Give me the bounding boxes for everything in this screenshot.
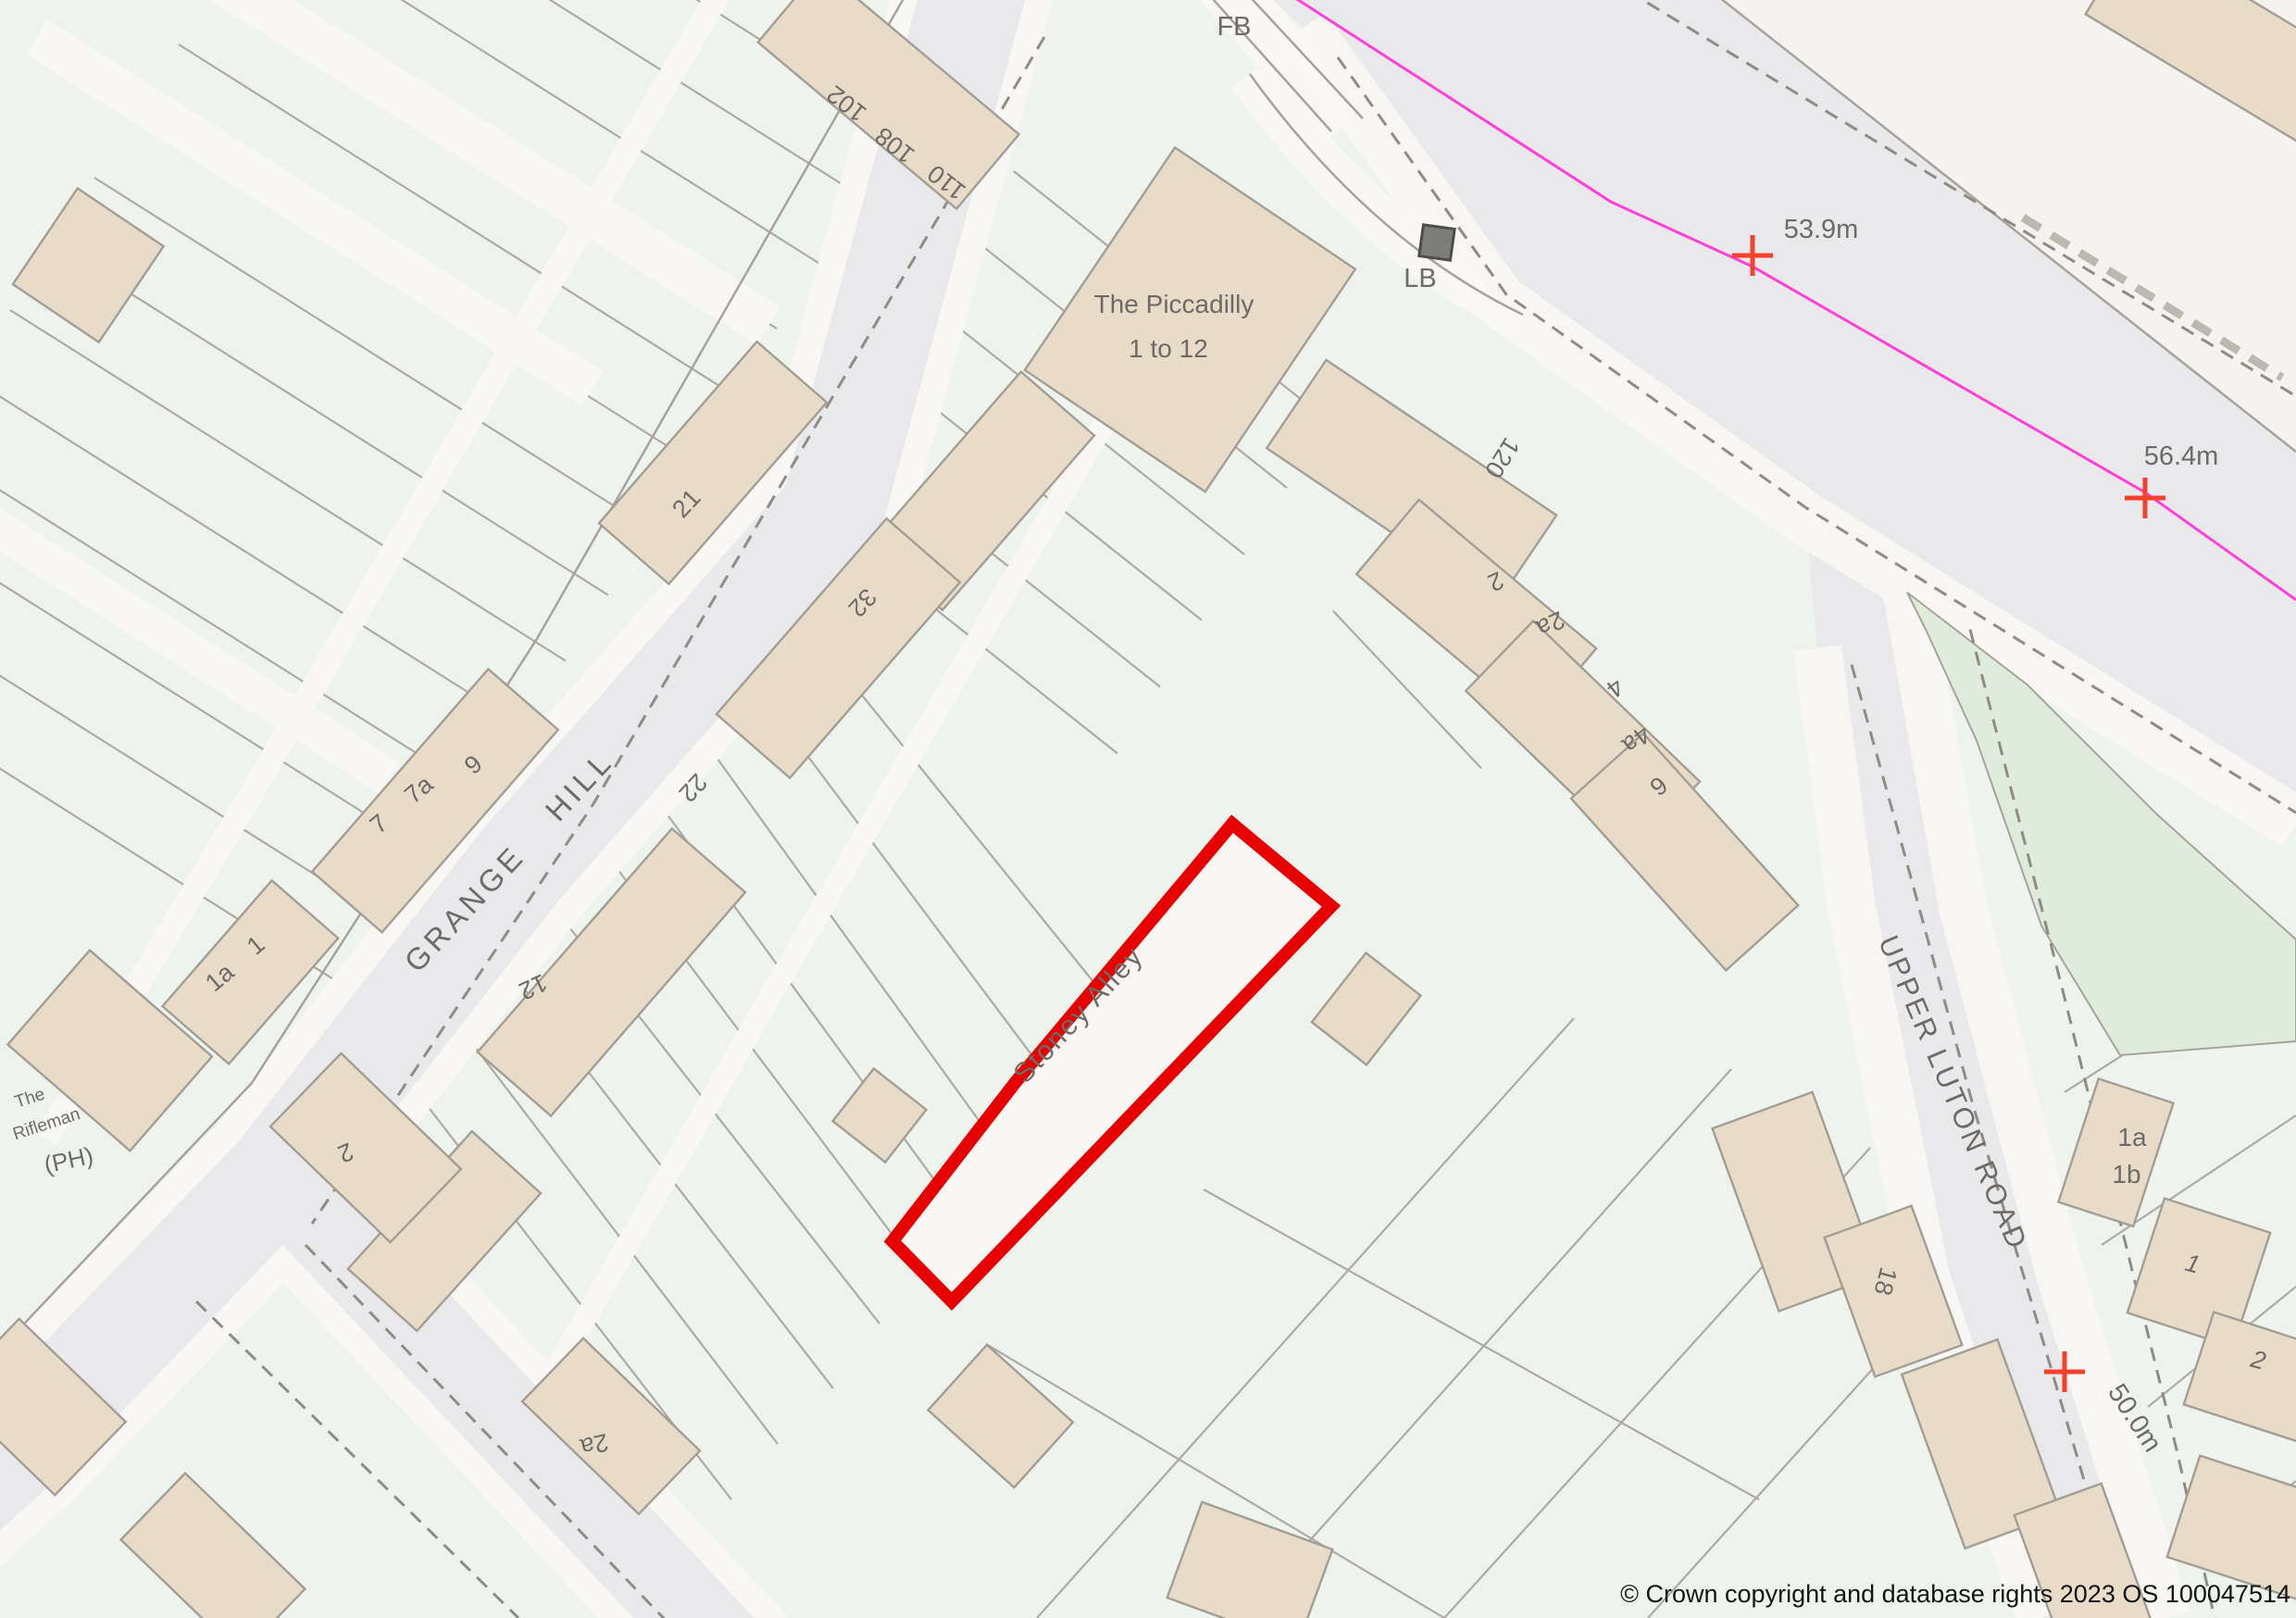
lb-label: LB	[1404, 264, 1436, 293]
house-number-1a-upper: 1a	[2117, 1123, 2147, 1151]
copyright-notice: © Crown copyright and database rights 20…	[1620, 1580, 2290, 1608]
piccadilly-name-label: The Piccadilly	[1094, 290, 1254, 318]
house-number-1b-upper: 1b	[2112, 1160, 2140, 1189]
fb-label: FB	[1217, 12, 1251, 42]
piccadilly-range-label: 1 to 12	[1129, 334, 1208, 363]
letter-box-marker	[1419, 225, 1454, 260]
spot-height-label-539: 53.9m	[1784, 215, 1859, 244]
os-map-extract: GRANGE HILL Stoney Alley UPPER LUTON ROA…	[0, 0, 2296, 1618]
spot-height-label-564: 56.4m	[2144, 442, 2219, 471]
map-canvas: GRANGE HILL Stoney Alley UPPER LUTON ROA…	[0, 0, 2296, 1618]
